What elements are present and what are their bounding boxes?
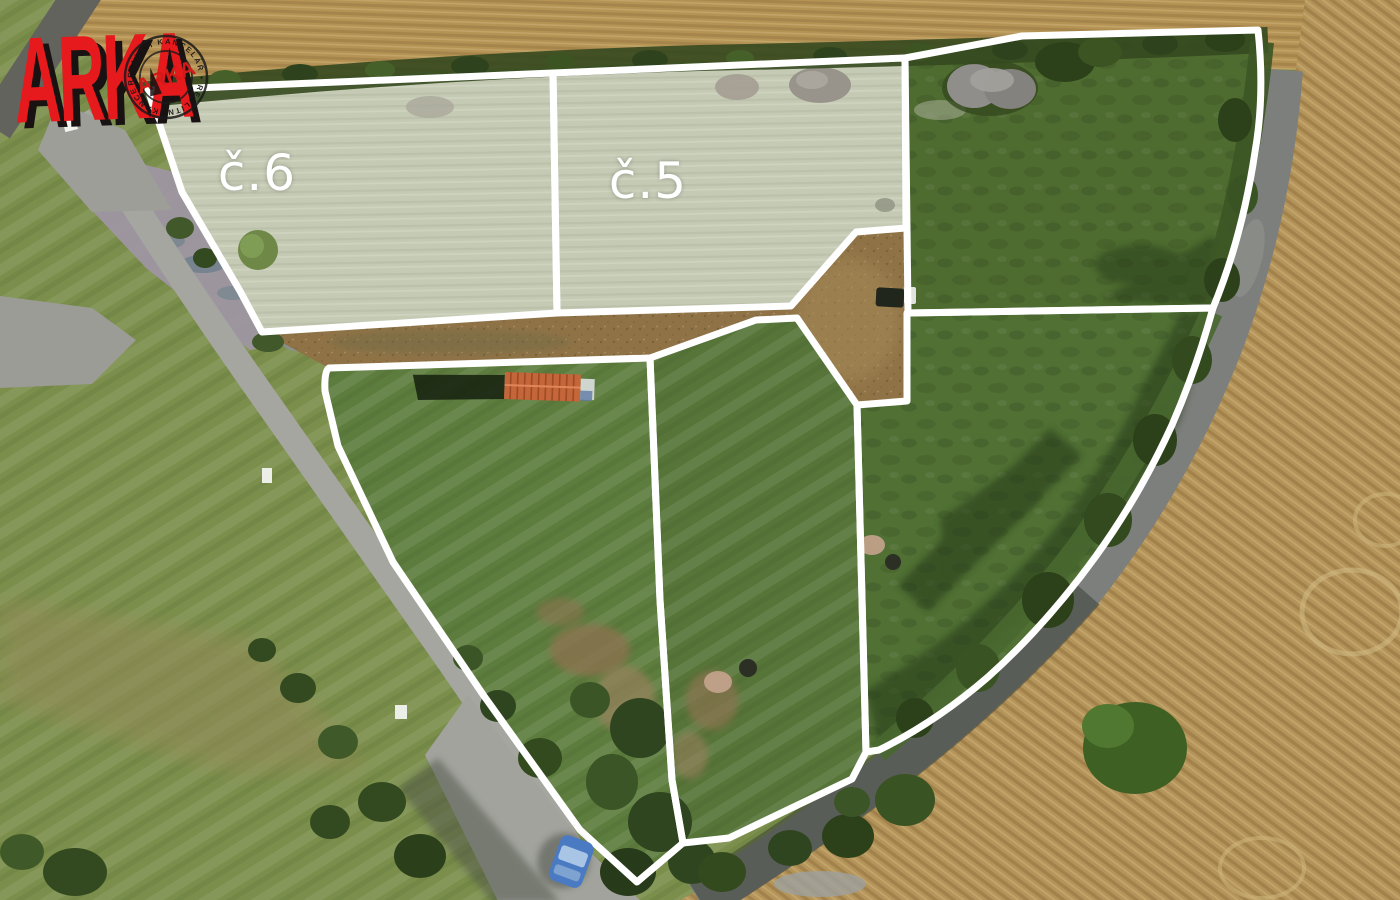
- arka-logo: ARKA ARKA REALITNÍ KANCELÁŘ • REALITNÍ K…: [0, 0, 216, 158]
- dirt-green-tinge: [330, 330, 570, 354]
- spot-p5: [875, 198, 895, 212]
- aerial-parcel-map: č.6 č.5 ARKA ARKA REALITNÍ KANCELÁŘ • RE…: [0, 0, 1400, 900]
- bush-highlight: [240, 234, 264, 258]
- aerial-photo: č.6 č.5 ARKA ARKA REALITNÍ KANCELÁŘ • RE…: [0, 0, 1400, 900]
- parcel-5-label: č.5: [609, 152, 687, 210]
- shed-shadow: [412, 372, 505, 403]
- rock-mound-small: [715, 74, 759, 100]
- rock-mound-large: [942, 60, 1038, 116]
- shed-blue-part: [580, 391, 592, 401]
- road-light-patch: [774, 871, 866, 897]
- marker-post-1: [262, 468, 272, 483]
- marker-post-2: [395, 705, 407, 719]
- rock-mound-mid: [789, 67, 851, 103]
- dark-container-object: [875, 287, 904, 307]
- parcel-6-label: č.6: [218, 144, 296, 202]
- dirt-smudge-p6: [406, 96, 454, 118]
